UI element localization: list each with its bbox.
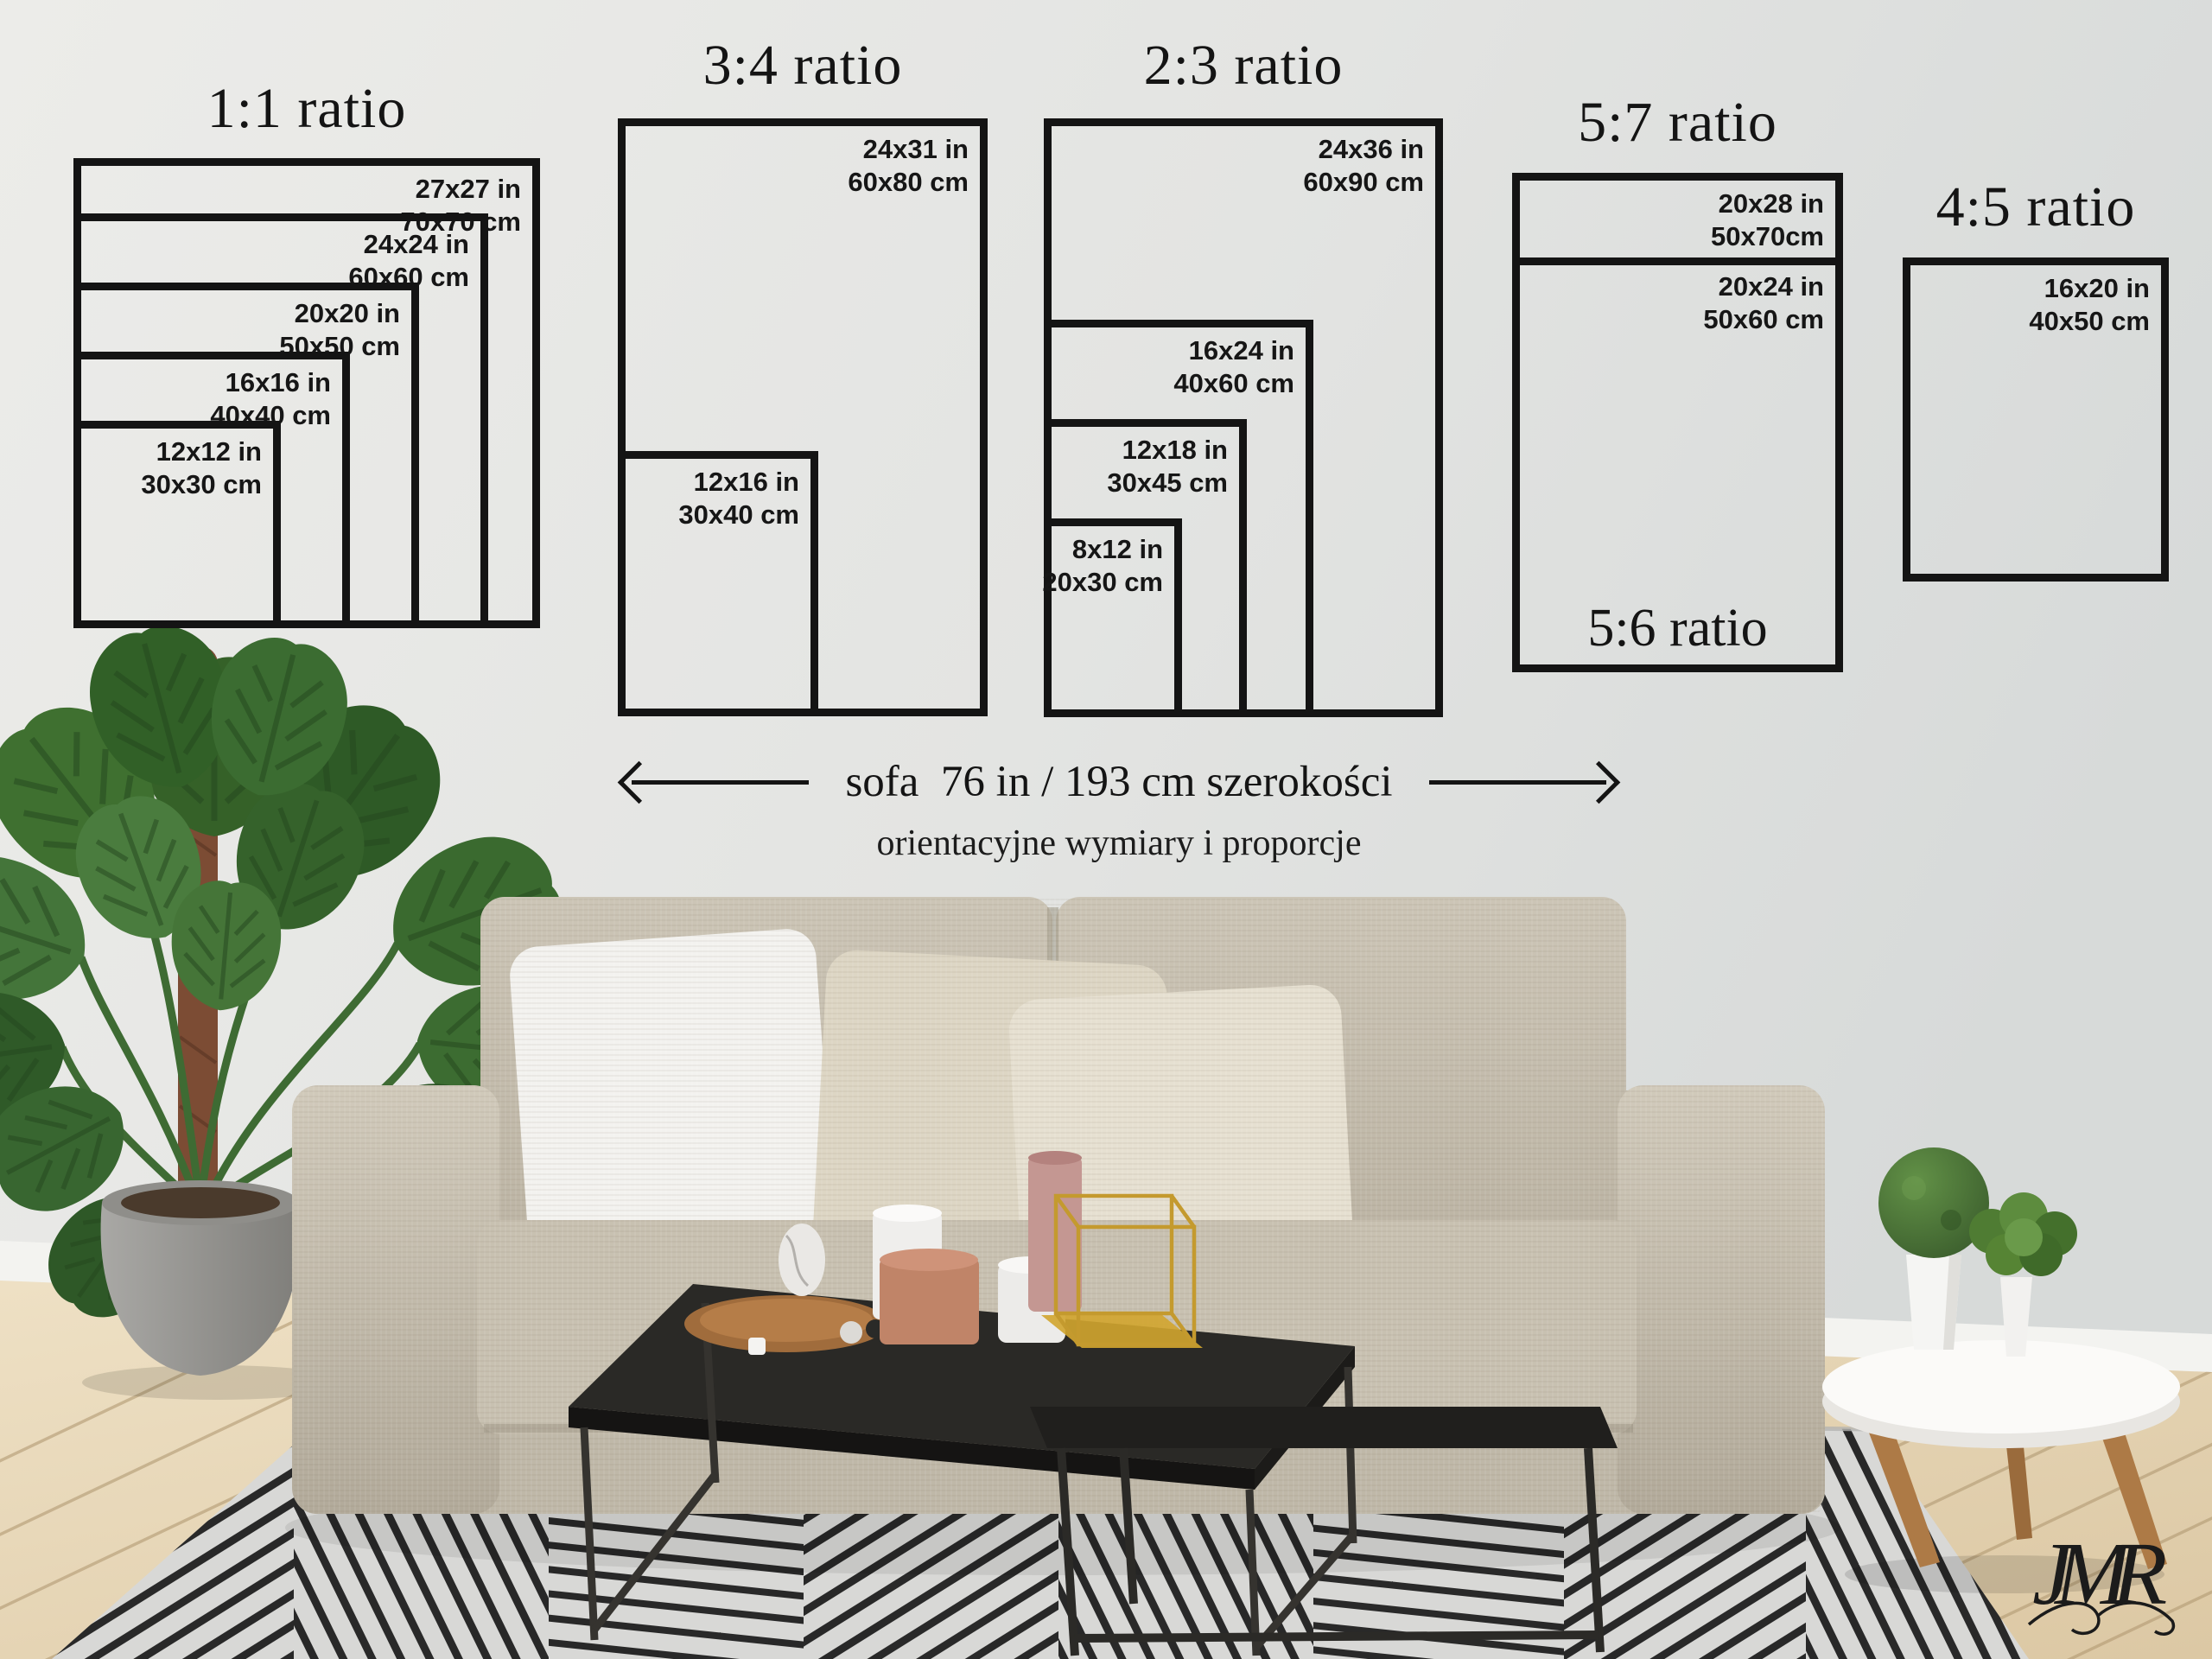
ratio-group-4-5: 16x20 in 40x50 cm: [1903, 257, 2169, 582]
size-in: 12x16 in: [678, 466, 799, 499]
sofa-width-text: sofa 76 in / 193 cm szerokości: [845, 757, 1392, 807]
size-in: 24x24 in: [348, 228, 469, 261]
ratio-title-4-5: 4:5 ratio: [1903, 176, 2169, 238]
size-in: 20x20 in: [279, 297, 400, 330]
frame-label: 20x28 in 50x70cm: [1711, 188, 1824, 253]
size-in: 20x28 in: [1711, 188, 1824, 220]
size-cm: 50x60 cm: [1703, 303, 1824, 336]
size-in: 27x27 in: [400, 173, 521, 206]
frame-label: 24x31 in 60x80 cm: [848, 133, 969, 199]
size-in: 16x24 in: [1173, 334, 1294, 367]
size-in: 20x24 in: [1703, 270, 1824, 303]
size-in: 8x12 in: [1042, 533, 1163, 566]
arrow-left-icon: [618, 760, 660, 803]
ratio-title-1-1: 1:1 ratio: [73, 78, 540, 140]
size-cm: 30x45 cm: [1107, 467, 1228, 499]
size-in: 16x20 in: [2029, 272, 2150, 305]
ratio-title-5-7: 5:7 ratio: [1512, 92, 1843, 154]
size-cm: 20x30 cm: [1042, 566, 1163, 599]
ratio-group-2-3: 24x36 in 60x90 cm 16x24 in 40x60 cm 12x1…: [1044, 118, 1443, 717]
ratio-title-2-3: 2:3 ratio: [1044, 35, 1443, 97]
ratio-title-5-6: 5:6 ratio: [1520, 599, 1835, 658]
frame-12x12: 12x12 in 30x30 cm: [73, 421, 281, 628]
arrow-right-icon: [1577, 760, 1619, 803]
size-in: 12x12 in: [141, 435, 262, 468]
frame-label: 20x24 in 50x60 cm: [1703, 270, 1824, 336]
ratio-title-3-4: 3:4 ratio: [618, 35, 988, 97]
frame-label: 8x12 in 20x30 cm: [1042, 533, 1163, 599]
size-in: 12x18 in: [1107, 434, 1228, 467]
poster-size-guide-mockup: JMR 1:1 ratio 27x27 in 70x70 cm 24x24 in…: [0, 0, 2212, 1659]
frame-label: 16x24 in 40x60 cm: [1173, 334, 1294, 400]
size-cm: 30x30 cm: [141, 468, 262, 501]
frame-label: 12x16 in 30x40 cm: [678, 466, 799, 531]
size-guide-overlay: 1:1 ratio 27x27 in 70x70 cm 24x24 in 60x…: [0, 0, 2212, 1659]
frame-label: 12x18 in 30x45 cm: [1107, 434, 1228, 499]
size-cm: 60x80 cm: [848, 166, 969, 199]
size-in: 24x36 in: [1303, 133, 1424, 166]
ratio-group-5-7: 20x28 in 50x70cm 20x24 in 50x60 cm 5:6 r…: [1512, 173, 1843, 672]
size-in: 24x31 in: [848, 133, 969, 166]
sofa-width-note: sofa 76 in / 193 cm szerokości: [605, 752, 1633, 812]
size-cm: 40x50 cm: [2029, 305, 2150, 338]
frame-label: 24x36 in 60x90 cm: [1303, 133, 1424, 199]
size-cm: 30x40 cm: [678, 499, 799, 531]
frame-16x20: 16x20 in 40x50 cm: [1903, 257, 2169, 582]
ratio-group-1-1: 27x27 in 70x70 cm 24x24 in 60x60 cm 20x2…: [73, 158, 540, 628]
subtitle: orientacyjne wymiary i proporcje: [605, 823, 1633, 864]
size-cm: 50x70cm: [1711, 220, 1824, 253]
frame-20x28: 20x28 in 50x70cm 20x24 in 50x60 cm 5:6 r…: [1512, 173, 1843, 672]
frame-20x24-top-edge: [1520, 257, 1835, 265]
frame-12x16: 12x16 in 30x40 cm: [618, 451, 818, 716]
frame-label: 16x20 in 40x50 cm: [2029, 272, 2150, 338]
size-cm: 60x90 cm: [1303, 166, 1424, 199]
ratio-group-3-4: 24x31 in 60x80 cm 12x16 in 30x40 cm: [618, 118, 988, 716]
frame-label: 12x12 in 30x30 cm: [141, 435, 262, 501]
frame-8x12: 8x12 in 20x30 cm: [1044, 518, 1182, 717]
size-in: 16x16 in: [210, 366, 331, 399]
size-cm: 40x60 cm: [1173, 367, 1294, 400]
